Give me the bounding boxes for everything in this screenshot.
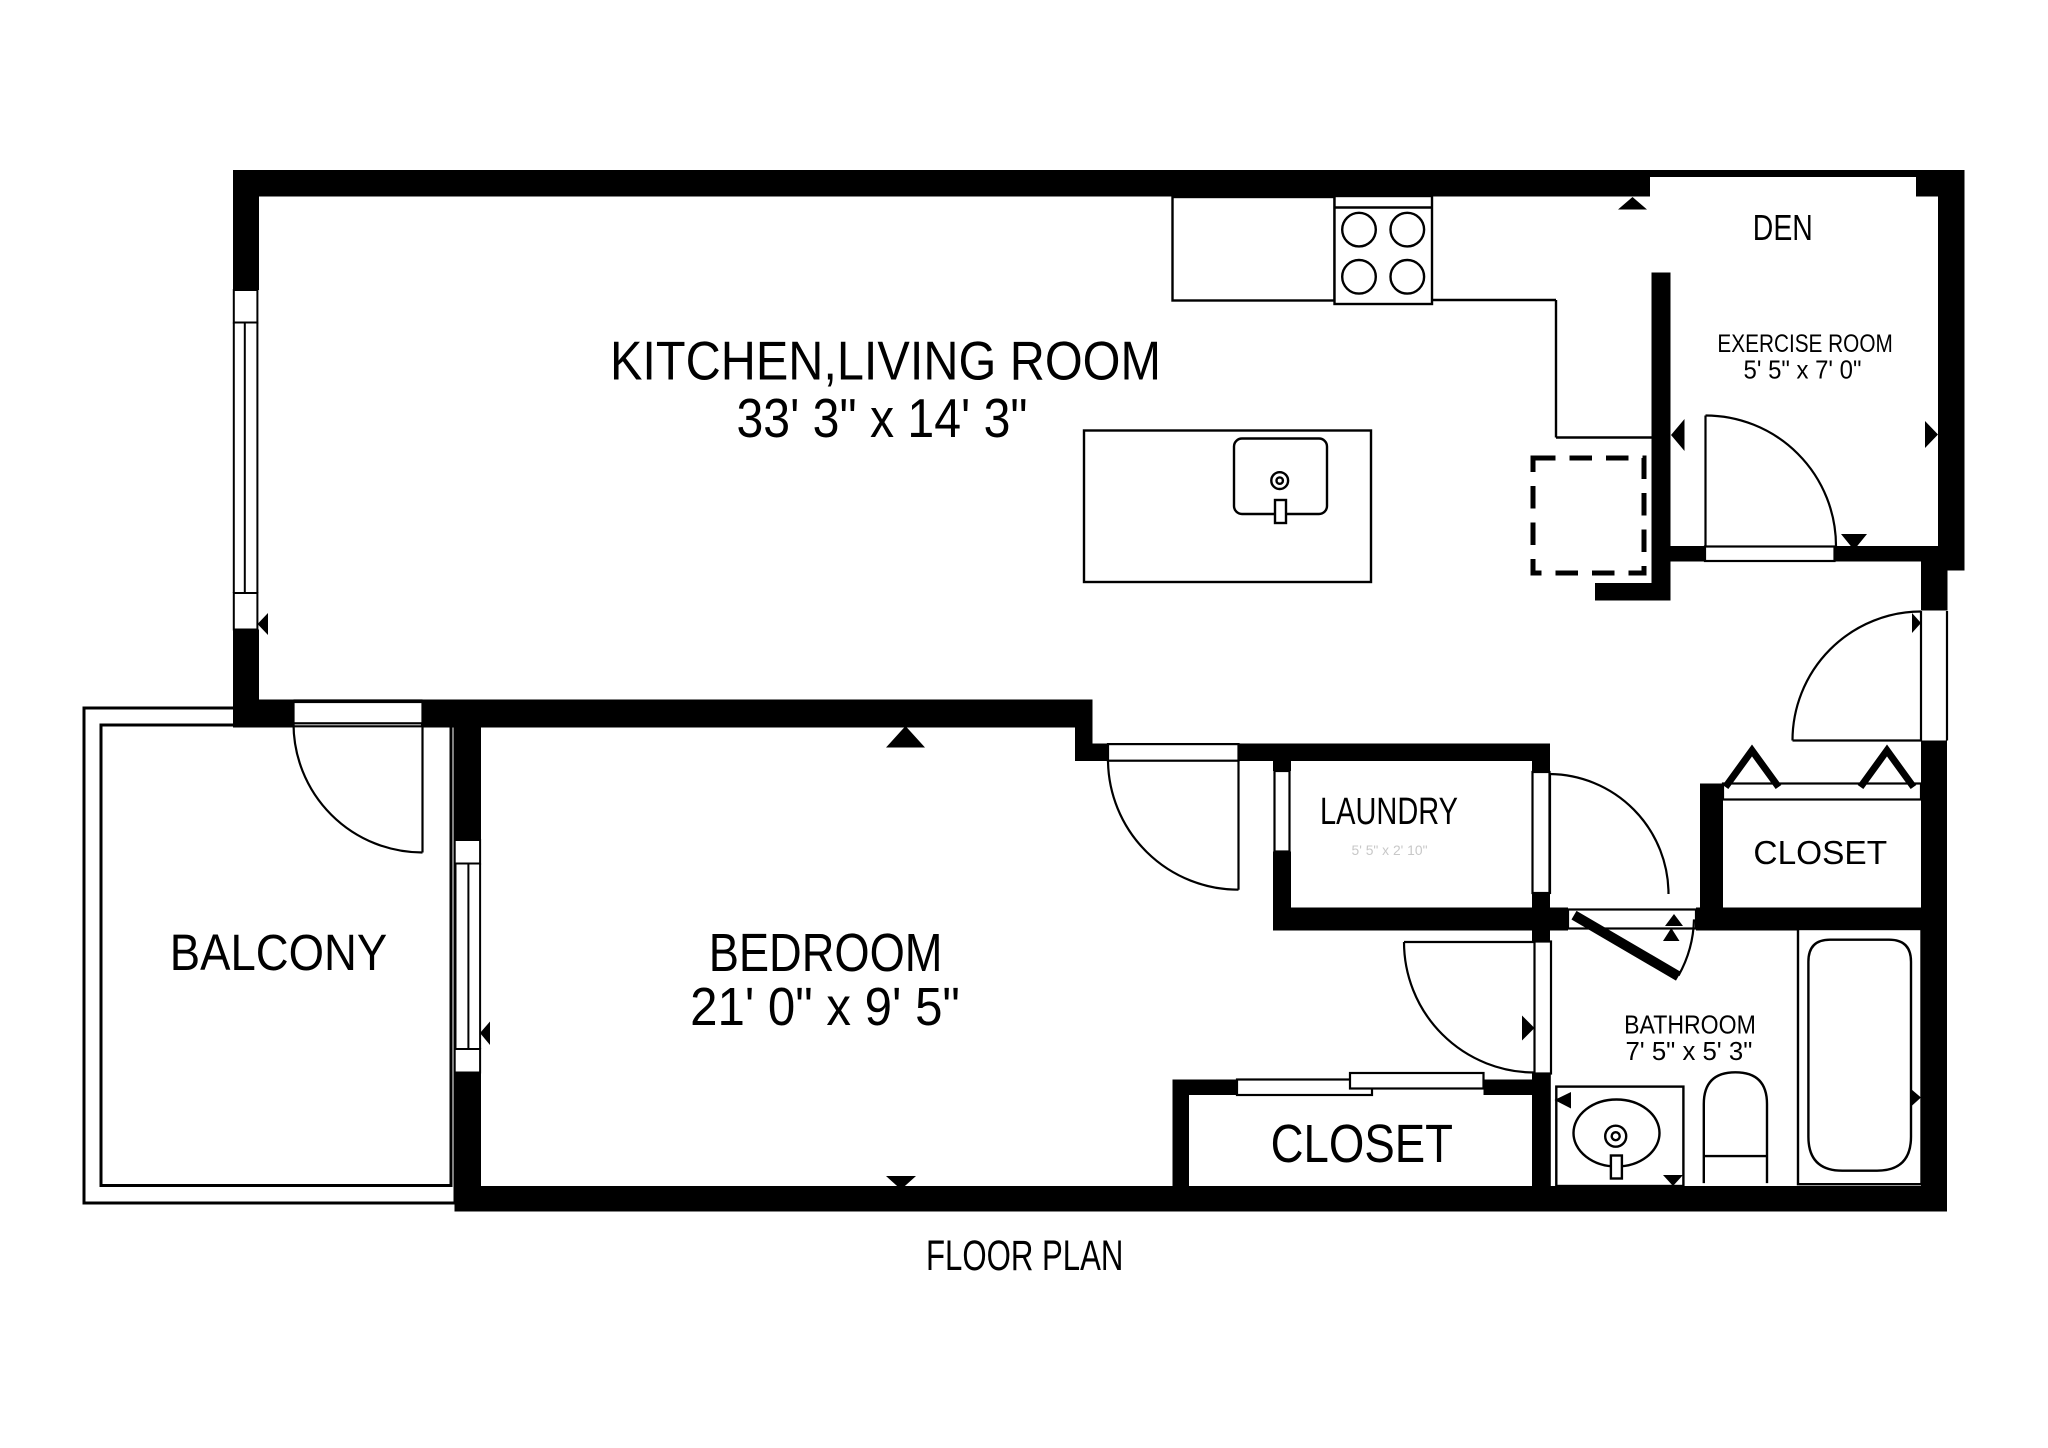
svg-text:CLOSET: CLOSET xyxy=(1753,835,1887,872)
svg-text:BALCONY: BALCONY xyxy=(170,924,387,981)
svg-text:7' 5" x 5' 3": 7' 5" x 5' 3" xyxy=(1625,1036,1752,1066)
svg-text:KITCHEN,LIVING ROOM: KITCHEN,LIVING ROOM xyxy=(610,330,1161,392)
svg-text:CLOSET: CLOSET xyxy=(1271,1115,1453,1174)
svg-text:LAUNDRY: LAUNDRY xyxy=(1320,791,1458,833)
svg-text:5' 5" x 2' 10": 5' 5" x 2' 10" xyxy=(1352,843,1428,858)
svg-text:BEDROOM: BEDROOM xyxy=(709,923,943,983)
svg-text:FLOOR PLAN: FLOOR PLAN xyxy=(926,1232,1123,1279)
svg-text:DEN: DEN xyxy=(1753,207,1813,248)
svg-text:BATHROOM: BATHROOM xyxy=(1624,1009,1756,1039)
svg-text:5' 5" x 7' 0": 5' 5" x 7' 0" xyxy=(1744,354,1862,384)
svg-text:33' 3" x 14' 3": 33' 3" x 14' 3" xyxy=(737,387,1028,449)
svg-text:21' 0" x 9' 5": 21' 0" x 9' 5" xyxy=(690,977,960,1037)
